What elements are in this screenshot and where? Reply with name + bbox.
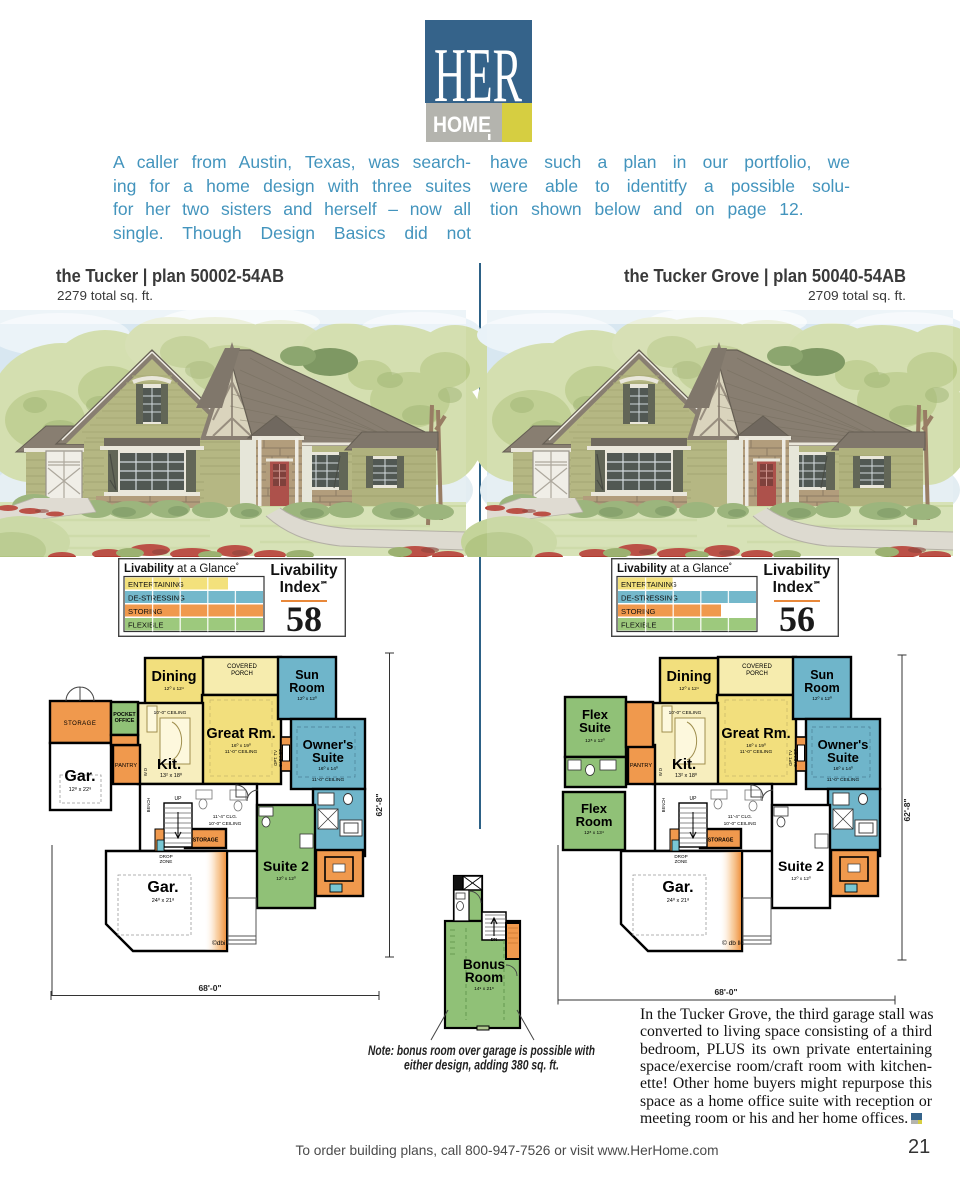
svg-text:2709 total sq. ft.: 2709 total sq. ft.	[808, 288, 906, 303]
svg-text:DN: DN	[491, 937, 498, 942]
svg-text:Room: Room	[465, 970, 503, 985]
svg-text:STORING: STORING	[621, 607, 656, 616]
svg-text:Livability at a Glance°: Livability at a Glance°	[124, 562, 239, 575]
svg-text:56: 56	[779, 599, 815, 637]
svg-text:FLEXIBLE: FLEXIBLE	[621, 621, 656, 630]
svg-text:©dbi: ©dbi	[212, 939, 225, 947]
svg-text:Room: Room	[576, 814, 613, 829]
svg-text:ENTERTAINING: ENTERTAINING	[128, 580, 184, 589]
svg-text:FLEXIBLE: FLEXIBLE	[128, 621, 163, 630]
svg-text:DE-STRESSING: DE-STRESSING	[621, 594, 678, 603]
svg-text:© db llc: © db llc	[722, 939, 745, 947]
svg-text:14⁹ x 21⁸: 14⁹ x 21⁸	[474, 986, 494, 992]
svg-text:58: 58	[286, 599, 322, 637]
svg-text:STORING: STORING	[128, 607, 163, 616]
svg-text:Gar.: Gar.	[64, 768, 95, 785]
svg-text:the Tucker | plan 50002-54AB: the Tucker | plan 50002-54AB	[56, 266, 284, 286]
svg-text:ENTERTAINING: ENTERTAINING	[621, 580, 677, 589]
svg-text:62'-8": 62'-8"	[902, 798, 912, 821]
svg-text:68'-0": 68'-0"	[714, 987, 737, 997]
svg-text:HOME: HOME	[433, 112, 491, 137]
svg-text:12⁸ x 22⁹: 12⁸ x 22⁹	[69, 786, 92, 793]
svg-text:Suite: Suite	[579, 720, 611, 735]
svg-text:STORAGE: STORAGE	[64, 721, 97, 727]
svg-text:Livability: Livability	[763, 562, 831, 579]
svg-text:2279 total sq. ft.: 2279 total sq. ft.	[57, 288, 153, 303]
svg-text:Livability at a Glance°: Livability at a Glance°	[617, 562, 732, 575]
svg-text:Livability: Livability	[270, 562, 338, 579]
svg-text:either design, adding 380 sq.: either design, adding 380 sq. ft.	[404, 1058, 559, 1073]
svg-text:62'-8": 62'-8"	[374, 793, 384, 816]
svg-text:Note: bonus room over garage i: Note: bonus room over garage is possible…	[368, 1043, 595, 1058]
svg-text:the Tucker Grove | plan 50040-: the Tucker Grove | plan 50040-54AB	[624, 266, 906, 286]
svg-text:DE-STRESSING: DE-STRESSING	[128, 594, 185, 603]
svg-text:68'-0": 68'-0"	[198, 983, 221, 993]
svg-text:12⁸ x 12⁰: 12⁸ x 12⁰	[585, 738, 605, 744]
svg-text:12⁸ x 13⁴: 12⁸ x 13⁴	[584, 830, 604, 836]
svg-text:OFFICE: OFFICE	[115, 718, 135, 724]
